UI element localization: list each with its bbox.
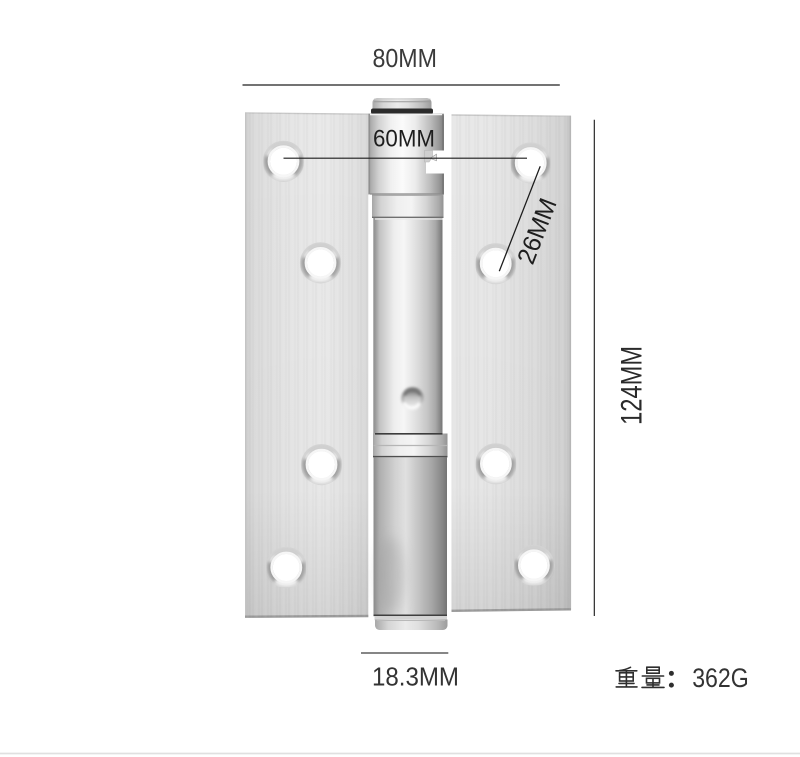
svg-text:18.3MM: 18.3MM <box>372 662 459 692</box>
svg-text:60MM: 60MM <box>373 125 435 152</box>
svg-text:362G: 362G <box>692 663 749 693</box>
svg-text:124MM: 124MM <box>616 346 649 425</box>
svg-text:80MM: 80MM <box>372 43 437 73</box>
